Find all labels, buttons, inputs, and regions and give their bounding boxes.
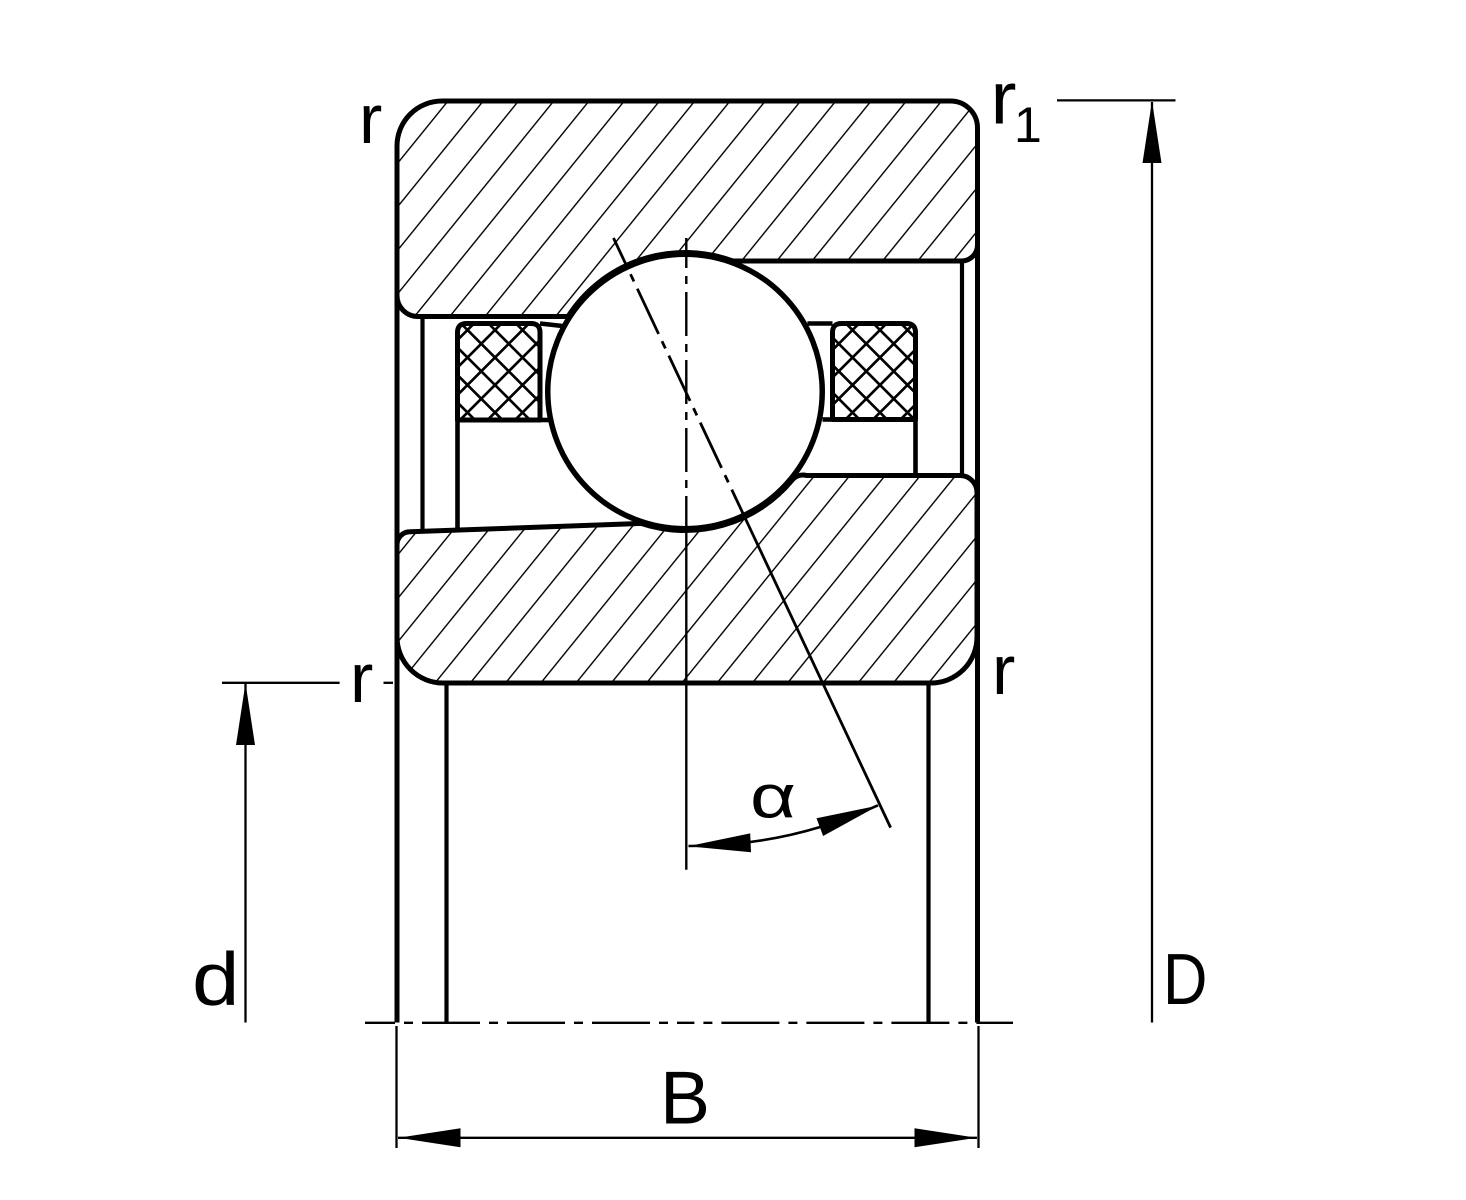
- svg-text:r: r: [992, 631, 1015, 709]
- svg-text:r: r: [991, 57, 1017, 140]
- svg-text:d: d: [192, 937, 240, 1021]
- svg-text:1: 1: [1014, 97, 1042, 153]
- svg-text:B: B: [660, 1056, 710, 1140]
- svg-text:r: r: [359, 80, 382, 158]
- svg-text:D: D: [1163, 940, 1207, 1020]
- svg-text:r: r: [350, 639, 373, 717]
- svg-text:α: α: [750, 763, 796, 831]
